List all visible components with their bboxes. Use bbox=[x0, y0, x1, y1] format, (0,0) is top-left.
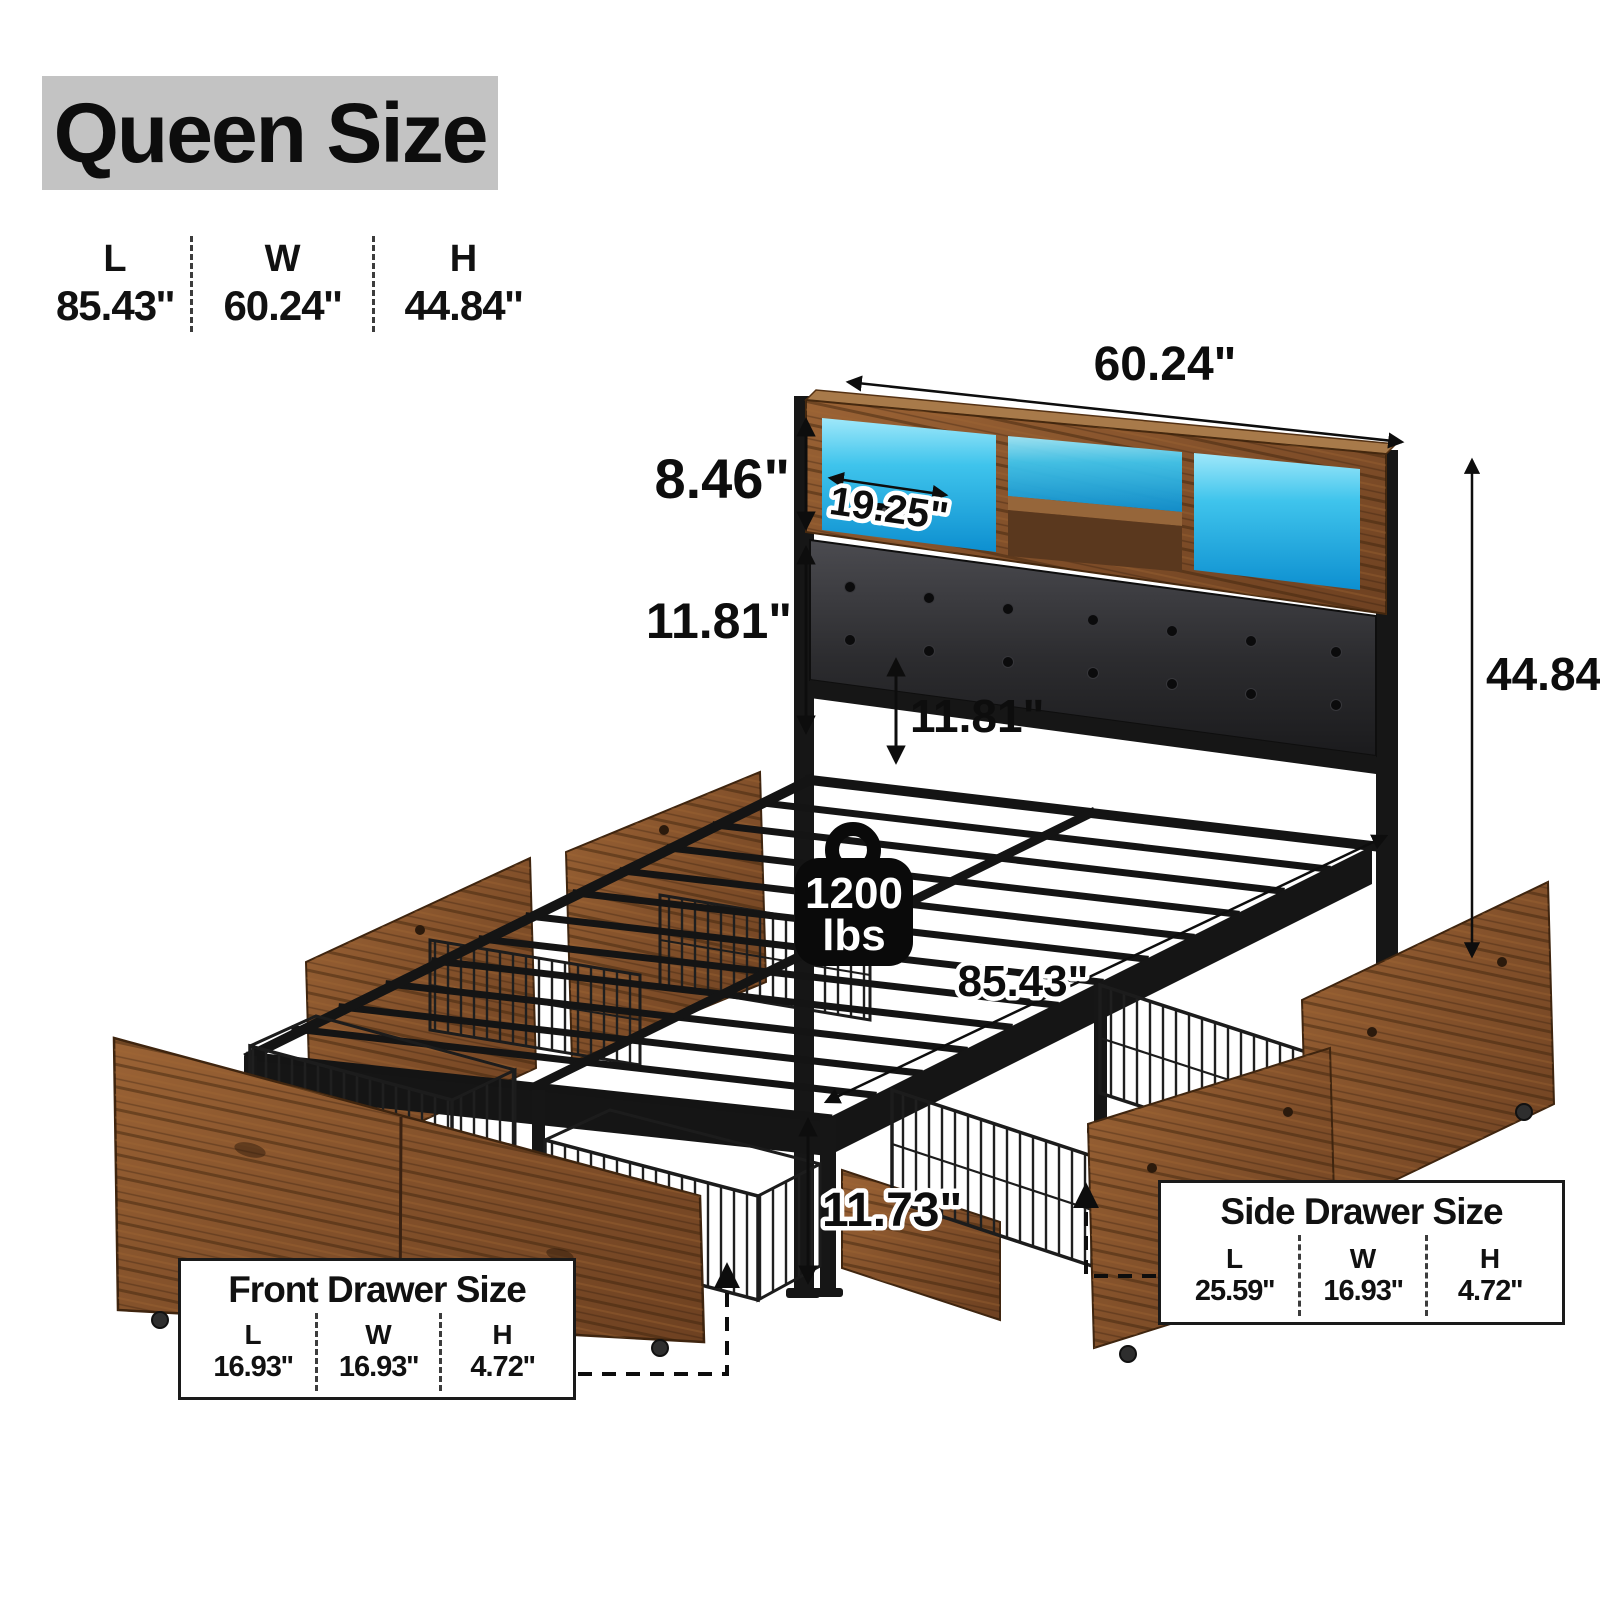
caster-wheel bbox=[152, 1312, 168, 1328]
screw-icon bbox=[659, 825, 669, 835]
size-title-box: Queen Size bbox=[42, 76, 498, 190]
bed-length-label: 85.43" bbox=[958, 957, 1089, 1006]
headboard-panel-height-label: 11.81" bbox=[646, 593, 792, 649]
caster-wheel bbox=[1120, 1346, 1136, 1362]
front-drawer-dim-height: H 4.72'' bbox=[439, 1313, 563, 1391]
screw-icon bbox=[415, 925, 425, 935]
caster-wheel bbox=[1516, 1104, 1532, 1120]
side-drawer-dim-width: W 16.93'' bbox=[1298, 1235, 1425, 1316]
total-height-label: 44.84" bbox=[1486, 648, 1600, 700]
side-drawer-dimensions-table: L 25.59'' W 16.93'' H 4.72'' bbox=[1171, 1235, 1552, 1316]
side-drawer-size-box: Side Drawer Size L 25.59'' W 16.93'' H 4… bbox=[1158, 1180, 1565, 1325]
shelf-height-label: 8.46" bbox=[654, 447, 790, 510]
weight-capacity-unit: lbs bbox=[822, 911, 886, 960]
front-drawer-dim-length: L 16.93'' bbox=[191, 1313, 315, 1391]
headboard-width-label: 60.24" bbox=[1094, 338, 1237, 391]
headboard-to-frame-label: 11.81" bbox=[910, 690, 1044, 742]
front-drawer-dim-width: W 16.93'' bbox=[315, 1313, 439, 1391]
side-drawer-dim-height: H 4.72'' bbox=[1425, 1235, 1552, 1316]
side-drawer-size-title: Side Drawer Size bbox=[1161, 1191, 1562, 1233]
led-compartment-right bbox=[1194, 453, 1360, 590]
overall-dim-width: W 60.24'' bbox=[190, 236, 372, 332]
overall-dimensions-table: L 85.43'' W 60.24'' H 44.84'' bbox=[40, 236, 552, 328]
side-drawer-dim-length: L 25.59'' bbox=[1171, 1235, 1298, 1316]
page-title: Queen Size bbox=[54, 85, 487, 182]
overall-dim-height: H 44.84'' bbox=[372, 236, 552, 332]
front-drawer-size-box: Front Drawer Size L 16.93'' W 16.93'' H … bbox=[178, 1258, 576, 1400]
overall-dim-length: L 85.43'' bbox=[40, 236, 190, 332]
front-drawer-dimensions-table: L 16.93'' W 16.93'' H 4.72'' bbox=[191, 1313, 563, 1391]
leg-height-label: 11.73" bbox=[822, 1184, 962, 1237]
caster-wheel bbox=[652, 1340, 668, 1356]
front-drawer-size-title: Front Drawer Size bbox=[181, 1269, 573, 1311]
